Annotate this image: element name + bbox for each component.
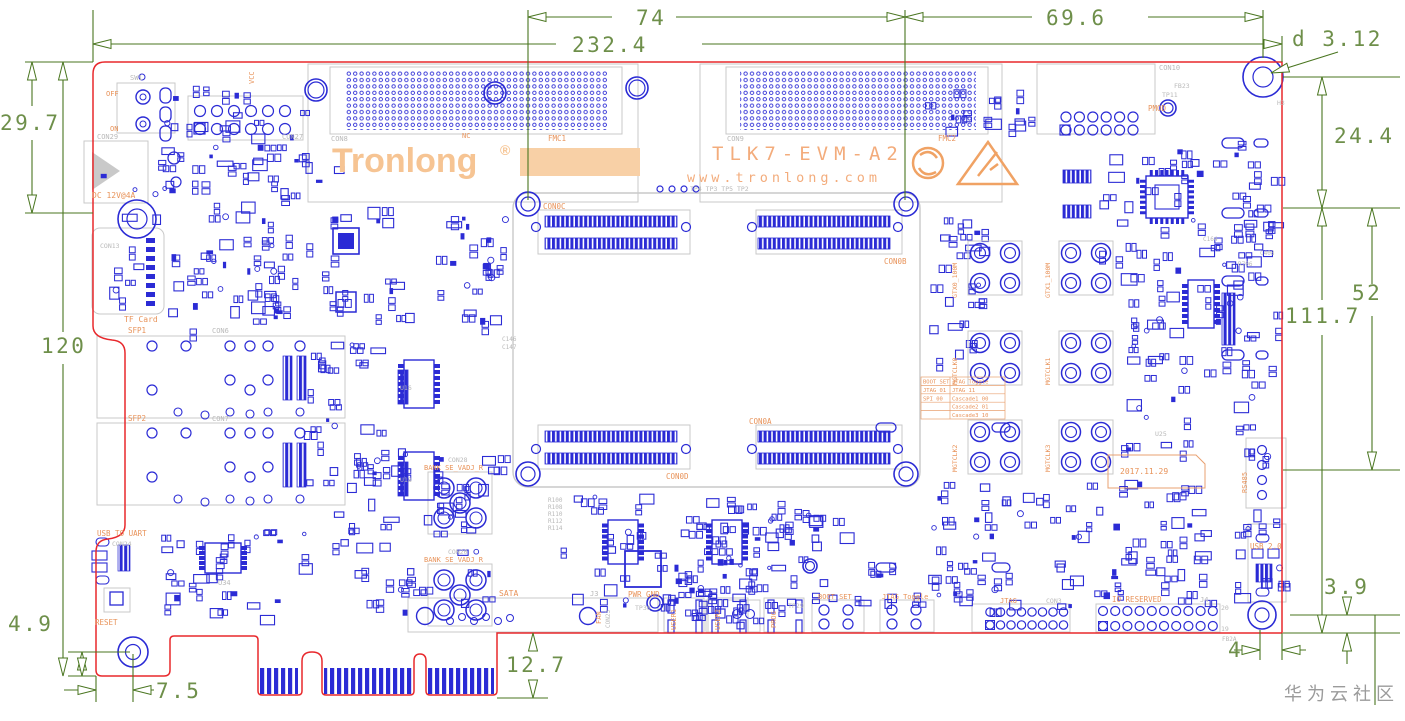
chip-pin xyxy=(434,394,440,398)
passive-pad xyxy=(376,315,381,319)
passive-pad xyxy=(698,567,703,572)
chip-pin xyxy=(398,364,404,368)
chip-pin xyxy=(1182,320,1188,324)
passive-pad xyxy=(1205,286,1211,293)
passive-pad xyxy=(284,307,291,312)
small-component xyxy=(162,547,173,553)
silkscreen-label: FAN xyxy=(595,611,603,624)
passive-pad xyxy=(324,480,328,485)
passive-pad xyxy=(840,518,845,525)
io-pin xyxy=(1196,622,1205,631)
silkscreen-label: CON0B xyxy=(884,257,907,266)
silkscreen-label: CON24 xyxy=(112,540,132,548)
chip-pin xyxy=(638,524,644,528)
passive-pad xyxy=(172,262,179,267)
b2b-connector-row xyxy=(545,453,677,464)
passive-pad xyxy=(245,540,250,545)
gtx-pin-hole xyxy=(1005,278,1016,289)
silkscreen-label: SW1 xyxy=(130,74,143,82)
small-component xyxy=(1200,248,1215,256)
dimension-arrowhead xyxy=(1343,597,1352,615)
chip-pin xyxy=(398,456,404,460)
oscillator xyxy=(1254,209,1268,217)
passive-pad xyxy=(1274,312,1278,319)
solder-pad xyxy=(974,517,979,522)
silkscreen-label: BOOT SET xyxy=(818,593,853,601)
chip-pin xyxy=(706,551,712,555)
passive-pad xyxy=(1147,564,1155,569)
passive-pad xyxy=(270,276,274,283)
chip-pin xyxy=(1188,206,1194,209)
passive-pad xyxy=(159,160,166,164)
dimension-arrowhead xyxy=(528,13,546,22)
dimension-arrowhead xyxy=(1343,633,1352,651)
passive-pad xyxy=(1151,375,1156,381)
passive-pad xyxy=(1175,194,1181,200)
registered-mark: ® xyxy=(500,142,511,158)
chip-pin xyxy=(742,551,748,555)
test-point xyxy=(669,186,675,192)
passive-pad xyxy=(1180,537,1187,542)
passive-pad xyxy=(159,166,166,170)
small-component xyxy=(820,580,828,587)
silkscreen-label: ON xyxy=(110,125,118,133)
usb-pad xyxy=(1256,588,1269,596)
small-component xyxy=(464,310,476,316)
chip-pin xyxy=(1166,170,1169,176)
chip-pin xyxy=(1140,201,1146,204)
passive-pad xyxy=(381,524,385,529)
gtx-pin-hole xyxy=(1001,274,1020,293)
finger-group-1 xyxy=(260,668,298,694)
passive-pad xyxy=(694,517,700,523)
gtx-pin-hole xyxy=(975,427,986,438)
passive-pad xyxy=(754,618,758,624)
passive-pad xyxy=(197,278,202,284)
passive-pad xyxy=(753,527,759,535)
io-pin xyxy=(1135,622,1144,631)
passive-pad xyxy=(1236,582,1241,587)
solder-pad xyxy=(623,603,626,607)
gtx-pin-hole xyxy=(1005,457,1016,468)
mounting-hole-outer xyxy=(516,462,540,486)
silkscreen-label: USER1 xyxy=(670,609,678,630)
passive-pad xyxy=(561,554,566,558)
passive-pad xyxy=(190,329,196,334)
solder-pad xyxy=(173,96,179,101)
passive-pad xyxy=(370,294,374,302)
passive-pad xyxy=(286,235,292,241)
dim-24-4: 24.4 xyxy=(1334,124,1395,148)
sfp-mount-hole xyxy=(245,385,255,395)
small-component xyxy=(162,148,174,155)
small-component xyxy=(254,158,263,164)
solder-pad xyxy=(1175,268,1181,274)
dim-hole-dia: d 3.12 xyxy=(1292,27,1383,51)
sfp-mount-hole xyxy=(147,472,157,482)
small-component xyxy=(1148,320,1164,329)
silkscreen-label: CON3 xyxy=(1046,597,1062,605)
passive-pad xyxy=(1252,382,1258,388)
small-component xyxy=(383,218,394,227)
passive-pad xyxy=(364,294,368,302)
passive-pad xyxy=(387,524,391,529)
passive-pad xyxy=(754,553,760,557)
sfp-mount-hole xyxy=(264,495,272,503)
passive-pad xyxy=(165,605,171,609)
passive-pad xyxy=(382,450,389,454)
passive-pad xyxy=(964,253,970,259)
passive-pad xyxy=(957,253,963,259)
passive-pad xyxy=(1154,266,1159,271)
passive-pad xyxy=(965,321,969,327)
passive-pad xyxy=(1134,347,1138,352)
chip-pin xyxy=(199,566,205,570)
silkscreen-label: CON9 xyxy=(727,135,744,143)
silkscreen-label: TP29 xyxy=(788,602,804,610)
passive-pad xyxy=(795,515,802,519)
passive-pad xyxy=(1271,177,1277,185)
jtag-pin xyxy=(1038,621,1046,629)
passive-pad xyxy=(470,245,478,251)
solder-pad xyxy=(1113,524,1120,531)
via xyxy=(214,145,219,150)
passive-pad xyxy=(1120,493,1128,498)
gtx-pin-hole xyxy=(1092,364,1111,383)
passive-pad xyxy=(748,504,752,510)
passive-pad xyxy=(1006,580,1012,585)
passive-pad xyxy=(179,581,184,586)
passive-pad xyxy=(1163,253,1167,261)
passive-pad xyxy=(355,454,361,459)
sata-pin xyxy=(507,615,514,622)
dimension-arrowhead xyxy=(93,40,111,49)
solder-pad xyxy=(1197,171,1204,177)
esd-warning-slash xyxy=(978,152,998,176)
bank-jumper-hole xyxy=(434,600,454,620)
passive-pad xyxy=(402,594,409,598)
small-component xyxy=(110,287,119,299)
silkscreen-label: C146 xyxy=(502,336,517,343)
dimension-arrowhead xyxy=(1242,646,1260,655)
chip-pin xyxy=(1214,302,1220,306)
dc-jack-pad xyxy=(171,177,181,187)
passive-pad xyxy=(457,484,462,490)
sata-mount xyxy=(417,608,434,625)
dip-pad xyxy=(843,619,853,629)
silkscreen-label: TP30 xyxy=(635,604,651,612)
passive-pad xyxy=(1242,370,1247,377)
silkscreen-label: CON6 xyxy=(212,327,229,335)
passive-pad xyxy=(1228,348,1232,356)
tronlong-logo: Tronlong xyxy=(332,142,477,180)
chip-pin xyxy=(1188,196,1194,199)
passive-pad xyxy=(307,251,313,257)
passive-pad xyxy=(1145,375,1150,381)
gtx-pin-hole xyxy=(1066,457,1077,468)
silkscreen-label: MGTCLK2 xyxy=(951,445,959,472)
via xyxy=(1076,534,1081,539)
small-component xyxy=(248,173,259,181)
passive-pad xyxy=(954,598,962,602)
dim-4: 4 xyxy=(1228,638,1243,662)
passive-pad xyxy=(244,243,251,247)
silkscreen-label: BANK SE_VADJ_R xyxy=(424,556,484,564)
passive-pad xyxy=(1095,591,1100,597)
dimension-arrowhead xyxy=(1318,77,1327,95)
passive-pad xyxy=(869,570,875,576)
silkscreen-label: CON28 xyxy=(448,456,468,464)
passive-pad xyxy=(1236,431,1243,435)
solder-pad xyxy=(276,310,282,314)
chip-pin xyxy=(1182,302,1188,306)
chip-pin xyxy=(241,546,247,550)
small-component xyxy=(707,499,719,508)
silkscreen-label: CON0C xyxy=(543,202,566,211)
passive-pad xyxy=(256,291,262,297)
chip-pin xyxy=(434,480,440,484)
silkscreen-label: MGTCLK3 xyxy=(1044,445,1052,472)
chip-pin xyxy=(1181,170,1184,176)
bank-jumper-hole xyxy=(470,482,482,494)
passive-pad xyxy=(293,278,298,283)
tf-card-pad xyxy=(146,301,155,306)
passive-pad xyxy=(937,365,943,371)
small-component xyxy=(252,134,265,144)
passive-pad xyxy=(1182,161,1186,167)
silkscreen-label: 19 xyxy=(1221,625,1229,633)
passive-pad xyxy=(278,145,282,151)
solder-pad xyxy=(487,571,490,577)
solder-pad xyxy=(209,155,212,159)
dip-pad xyxy=(819,605,829,615)
passive-pad xyxy=(1238,141,1246,145)
switch-pad xyxy=(136,117,150,131)
passive-pad xyxy=(505,456,510,463)
passive-pad xyxy=(197,589,202,594)
passive-pad xyxy=(961,234,966,240)
passive-pad xyxy=(1159,296,1165,300)
sfp-connector xyxy=(283,356,292,400)
small-component xyxy=(348,483,357,492)
small-component xyxy=(1192,510,1206,516)
sfp-mount-hole xyxy=(263,428,273,438)
small-component xyxy=(627,535,634,544)
solder-pad xyxy=(1171,397,1175,402)
con10-box xyxy=(1037,64,1155,134)
passive-pad xyxy=(189,583,196,587)
passive-pad xyxy=(708,606,713,613)
small-component xyxy=(490,316,501,325)
passive-pad xyxy=(1243,203,1250,208)
passive-pad xyxy=(721,587,725,594)
passive-pad xyxy=(223,98,230,104)
passive-pad xyxy=(779,612,785,617)
passive-pad xyxy=(1165,354,1169,360)
via xyxy=(270,244,274,248)
passive-pad xyxy=(389,298,396,304)
via xyxy=(992,587,998,593)
passive-pad xyxy=(189,588,196,592)
dimension-arrowhead xyxy=(28,195,37,213)
finger-group-2 xyxy=(324,668,412,694)
passive-pad xyxy=(1161,228,1169,232)
passive-pad xyxy=(949,243,957,248)
passive-pad xyxy=(1199,574,1206,580)
passive-pad xyxy=(931,285,936,293)
io-pin xyxy=(1099,607,1108,616)
sfp-mount-hole xyxy=(225,375,235,385)
small-component xyxy=(369,499,375,511)
chip-pin xyxy=(1182,314,1188,318)
small-component xyxy=(1117,220,1127,226)
uart-connector xyxy=(118,545,130,571)
fmc2-bga-grid xyxy=(740,70,976,130)
passive-pad xyxy=(1168,550,1172,556)
solder-pad xyxy=(1072,535,1076,540)
passive-pad xyxy=(193,181,198,187)
passive-pad xyxy=(1169,253,1173,261)
passive-pad xyxy=(421,590,427,596)
dip-pad xyxy=(911,619,921,629)
passive-pad xyxy=(392,279,397,284)
tf-card-pad xyxy=(146,274,155,279)
passive-pad xyxy=(318,450,323,456)
small-component xyxy=(207,574,217,582)
small-component xyxy=(1167,292,1179,302)
gtx-pin-hole xyxy=(1062,274,1081,293)
jtag-pin xyxy=(1038,608,1046,616)
passive-pad xyxy=(947,562,952,566)
chip-pin xyxy=(706,557,712,561)
passive-pad xyxy=(383,474,389,479)
passive-pad xyxy=(599,505,607,510)
silkscreen-label: SATA xyxy=(499,589,518,598)
header-pin xyxy=(212,106,223,117)
passive-pad xyxy=(272,187,278,191)
bga-fields xyxy=(345,70,976,130)
passive-pad xyxy=(383,468,389,473)
dimension-arrowhead xyxy=(529,633,538,651)
chip-pin xyxy=(706,529,712,533)
passive-pad xyxy=(944,218,948,224)
passive-pad xyxy=(1056,517,1060,523)
passive-pad xyxy=(355,528,359,533)
small-component xyxy=(604,585,616,596)
dimension-arrowhead xyxy=(59,62,68,80)
io-pin xyxy=(1111,607,1120,616)
sfp-mount-hole xyxy=(225,428,235,438)
boot-table-cell: Cascade1 00 xyxy=(952,396,988,402)
dc-jack-symbol xyxy=(92,152,120,190)
solder-pad xyxy=(951,115,954,121)
passive-pad xyxy=(589,499,595,507)
connector-pin-hole xyxy=(532,223,541,232)
passive-pad xyxy=(685,572,691,578)
gtx-pin-hole xyxy=(1096,368,1107,379)
passive-pad xyxy=(636,505,642,509)
io-pin xyxy=(1147,607,1156,616)
passive-pad xyxy=(1199,582,1206,588)
via xyxy=(254,535,258,539)
silkscreen-label: JTAG Toggle xyxy=(882,593,928,601)
small-component xyxy=(368,207,380,219)
gtx-pin-hole xyxy=(1096,278,1107,289)
passive-pad xyxy=(368,465,373,469)
small-component xyxy=(1097,507,1103,515)
passive-pad xyxy=(331,262,339,267)
passive-pad xyxy=(1066,506,1070,512)
passive-pad xyxy=(461,522,466,527)
solder-pad xyxy=(1068,604,1072,608)
passive-pad xyxy=(165,611,171,615)
oscillator xyxy=(1222,350,1244,360)
chip-pin xyxy=(1171,218,1174,224)
passive-pad xyxy=(204,92,209,96)
gtx-pin-hole xyxy=(971,274,990,293)
passive-pad xyxy=(337,312,343,316)
passive-pad xyxy=(239,296,243,303)
passive-pad xyxy=(795,509,802,513)
passive-pad xyxy=(320,358,325,363)
passive-pad xyxy=(1184,418,1190,423)
sfp-mount-hole xyxy=(263,375,273,385)
passive-pad xyxy=(1213,161,1219,167)
small-component xyxy=(1178,570,1185,581)
silkscreen-label: USER2 xyxy=(714,609,722,630)
gtx-pin-hole xyxy=(1062,453,1081,472)
bank-jumper-hole xyxy=(438,604,450,616)
passive-pad xyxy=(1111,195,1117,201)
passive-pad xyxy=(967,590,973,594)
component-clutter-layer xyxy=(101,86,1290,629)
small-component xyxy=(307,480,313,486)
passive-pad xyxy=(1198,224,1205,229)
small-component xyxy=(980,484,989,491)
silkscreen-label: RS485 xyxy=(1241,472,1249,493)
passive-pad xyxy=(215,216,220,222)
small-component xyxy=(1037,498,1044,505)
passive-pad xyxy=(1161,521,1166,525)
passive-pad xyxy=(1158,287,1163,292)
passive-pad xyxy=(724,600,728,607)
passive-pad xyxy=(1143,250,1147,258)
silkscreen-label: SFP2 xyxy=(128,414,146,423)
passive-pad xyxy=(260,120,264,125)
solder-pad xyxy=(1234,153,1238,158)
passive-pad xyxy=(621,544,626,550)
passive-pad xyxy=(397,315,401,321)
passive-pad xyxy=(482,329,488,335)
rs485-pin xyxy=(1258,491,1267,500)
boot-table-cell: JTAG 01 xyxy=(923,388,946,394)
passive-pad xyxy=(698,560,703,565)
small-component xyxy=(1170,328,1184,337)
connector-pin-hole xyxy=(748,445,757,454)
silkscreen-label: JTAG xyxy=(1000,597,1017,605)
gtx-pin-hole xyxy=(1066,338,1077,349)
solder-pad xyxy=(223,262,226,268)
passive-pad xyxy=(1266,235,1272,239)
passive-pad xyxy=(451,224,458,230)
passive-pad xyxy=(1165,576,1170,582)
dimension-arrowhead xyxy=(1318,615,1327,633)
passive-pad xyxy=(855,602,861,606)
small-component xyxy=(1146,570,1156,575)
connector-pin-hole xyxy=(532,445,541,454)
gtx-pin-hole xyxy=(1092,334,1111,353)
solder-pad xyxy=(813,528,819,532)
